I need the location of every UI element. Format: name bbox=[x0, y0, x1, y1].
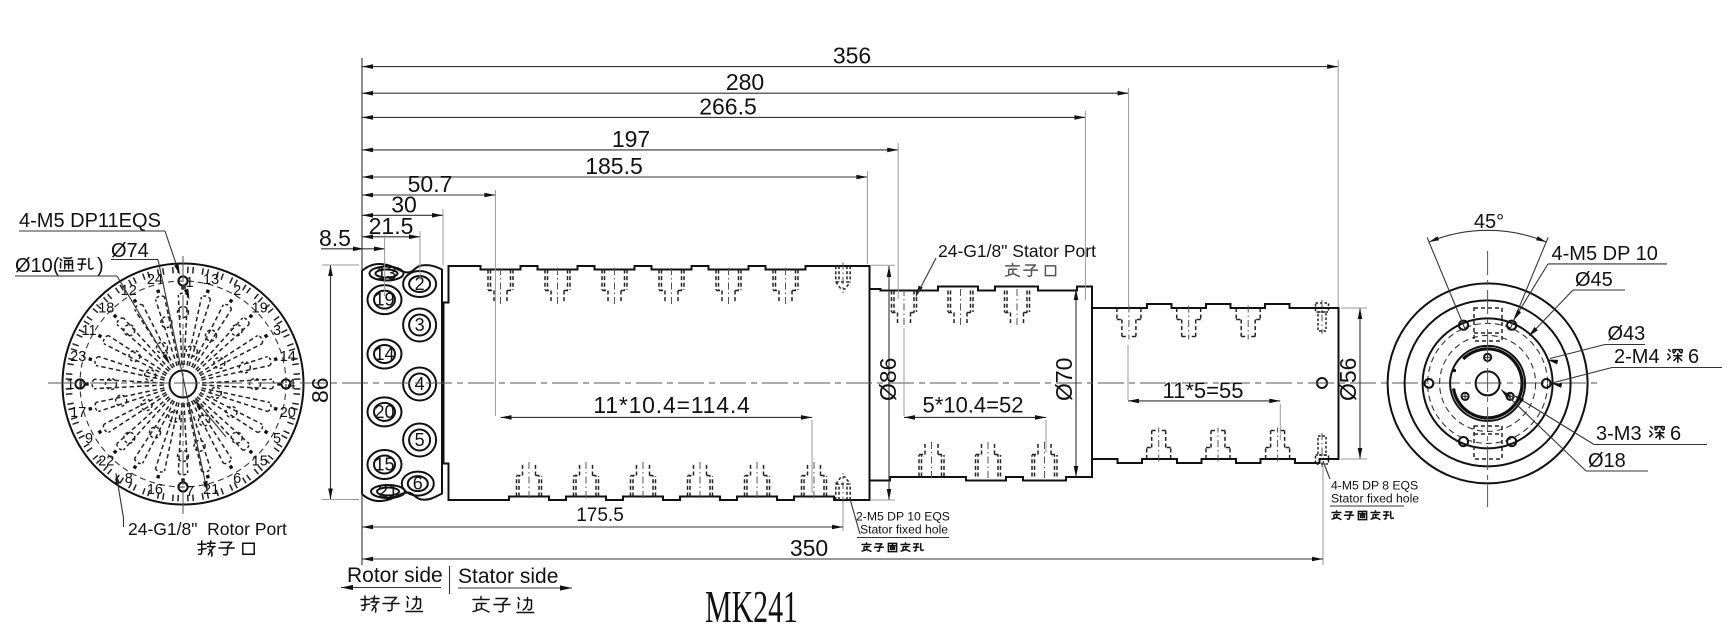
svg-text:4-M5 DP 10: 4-M5 DP 10 bbox=[1552, 243, 1658, 265]
svg-text:3: 3 bbox=[415, 315, 425, 335]
svg-text:11*5=55: 11*5=55 bbox=[1163, 378, 1244, 403]
svg-text:13: 13 bbox=[203, 272, 219, 288]
svg-text:5: 5 bbox=[415, 430, 425, 450]
svg-text:8: 8 bbox=[125, 471, 133, 487]
svg-text:18: 18 bbox=[98, 300, 114, 316]
svg-text:19: 19 bbox=[252, 300, 268, 316]
svg-text:356: 356 bbox=[833, 43, 871, 69]
svg-text:4-M5 DP 8 EQS: 4-M5 DP 8 EQS bbox=[1331, 479, 1418, 493]
svg-text:MK241: MK241 bbox=[705, 581, 798, 632]
svg-text:2: 2 bbox=[233, 283, 241, 299]
svg-text:3-M3: 3-M3 bbox=[1596, 423, 1642, 445]
svg-text:Stator fixed hole: Stator fixed hole bbox=[860, 523, 948, 537]
svg-text:5*10.4=52: 5*10.4=52 bbox=[923, 393, 1024, 418]
svg-text:Ø43: Ø43 bbox=[1608, 323, 1646, 345]
svg-text:23: 23 bbox=[70, 349, 86, 365]
svg-text:24-G1/8" Rotor Port: 24-G1/8" Rotor Port bbox=[128, 519, 287, 539]
svg-text:16: 16 bbox=[147, 482, 163, 498]
svg-text:11*10.4=114.4: 11*10.4=114.4 bbox=[593, 392, 750, 418]
svg-text:Stator fixed hole: Stator fixed hole bbox=[1331, 492, 1419, 506]
svg-text:266.5: 266.5 bbox=[699, 93, 757, 119]
svg-text:24: 24 bbox=[147, 272, 163, 288]
svg-text:Ø45: Ø45 bbox=[1575, 269, 1613, 291]
svg-text:Rotor side: Rotor side bbox=[347, 564, 443, 587]
svg-text:4-M5 DP11EQS: 4-M5 DP11EQS bbox=[19, 210, 161, 232]
svg-text:Stator side: Stator side bbox=[458, 565, 558, 588]
svg-text:2-M4: 2-M4 bbox=[1614, 346, 1660, 368]
svg-text:197: 197 bbox=[612, 126, 650, 152]
svg-text:11: 11 bbox=[81, 323, 96, 339]
svg-text:Ø56: Ø56 bbox=[1335, 358, 1361, 401]
svg-text:24-G1/8" Stator Port: 24-G1/8" Stator Port bbox=[938, 241, 1096, 261]
svg-text:5: 5 bbox=[273, 431, 281, 447]
svg-text:22: 22 bbox=[98, 454, 114, 470]
svg-text:45°: 45° bbox=[1474, 211, 1504, 233]
svg-text:Ø74: Ø74 bbox=[111, 240, 149, 262]
svg-text:2-M5 DP 10 EQS: 2-M5 DP 10 EQS bbox=[856, 510, 950, 524]
svg-text:21: 21 bbox=[378, 482, 398, 502]
svg-text:6: 6 bbox=[233, 471, 241, 487]
svg-text:14: 14 bbox=[374, 344, 394, 364]
svg-text:13: 13 bbox=[376, 264, 396, 284]
svg-text:21.5: 21.5 bbox=[369, 213, 414, 239]
svg-text:20: 20 bbox=[280, 405, 296, 421]
svg-text:): ) bbox=[97, 255, 104, 277]
svg-text:17: 17 bbox=[70, 405, 86, 421]
svg-text:Ø86: Ø86 bbox=[875, 358, 901, 401]
svg-text:9: 9 bbox=[85, 431, 93, 447]
svg-text:350: 350 bbox=[790, 535, 828, 561]
svg-text:Ø70: Ø70 bbox=[1051, 358, 1077, 401]
svg-text:6: 6 bbox=[1670, 423, 1681, 445]
svg-text:175.5: 175.5 bbox=[576, 505, 624, 526]
svg-text:6: 6 bbox=[1688, 346, 1699, 368]
svg-text:86: 86 bbox=[307, 377, 333, 403]
svg-text:4: 4 bbox=[415, 374, 425, 394]
svg-text:8.5: 8.5 bbox=[319, 225, 351, 251]
svg-text:20: 20 bbox=[374, 402, 394, 422]
svg-text:15: 15 bbox=[374, 455, 394, 475]
svg-text:6: 6 bbox=[413, 474, 423, 494]
svg-text:Ø10(: Ø10( bbox=[15, 255, 60, 277]
svg-text:15: 15 bbox=[252, 454, 268, 470]
svg-text:Ø18: Ø18 bbox=[1588, 450, 1626, 472]
svg-text:3: 3 bbox=[273, 323, 281, 339]
svg-text:14: 14 bbox=[280, 349, 296, 365]
svg-text:185.5: 185.5 bbox=[585, 153, 643, 179]
svg-text:280: 280 bbox=[726, 69, 764, 95]
